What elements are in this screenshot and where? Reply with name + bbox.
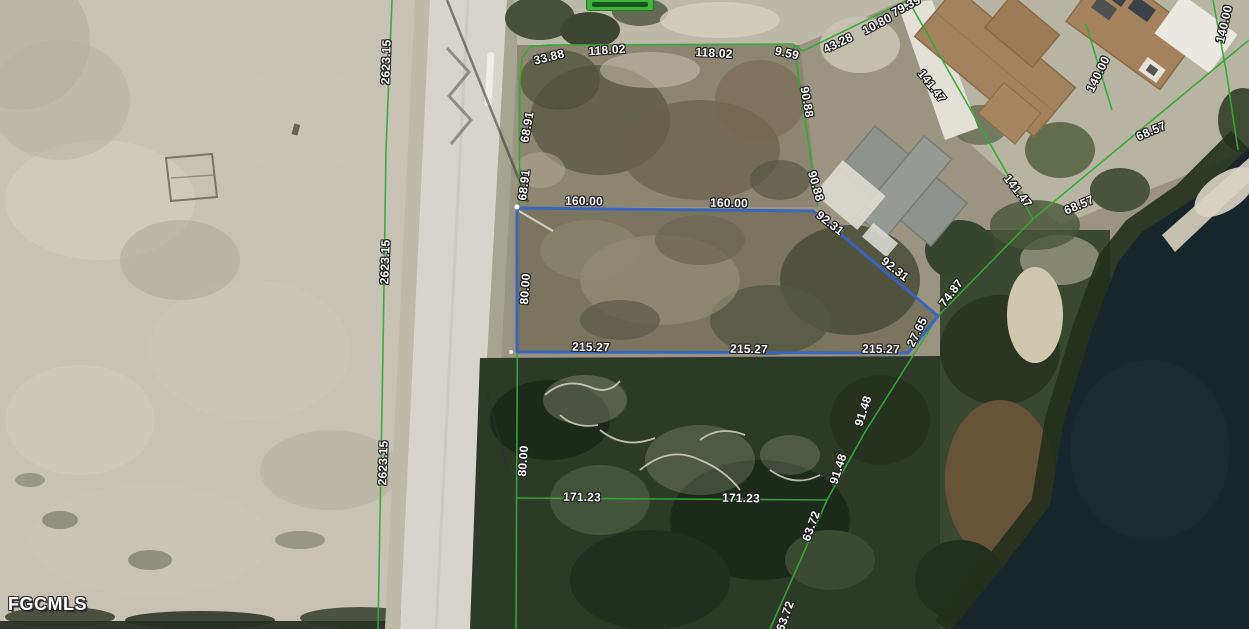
- aerial-imagery: [0, 0, 1249, 629]
- aerial-map: 2623.152623.152623.1533.88118.02118.029.…: [0, 0, 1249, 629]
- sand-patch: [1007, 267, 1063, 363]
- mls-watermark: FGCMLS: [8, 594, 87, 615]
- street-name-badge: [586, 0, 654, 11]
- street-name-text: [592, 2, 648, 7]
